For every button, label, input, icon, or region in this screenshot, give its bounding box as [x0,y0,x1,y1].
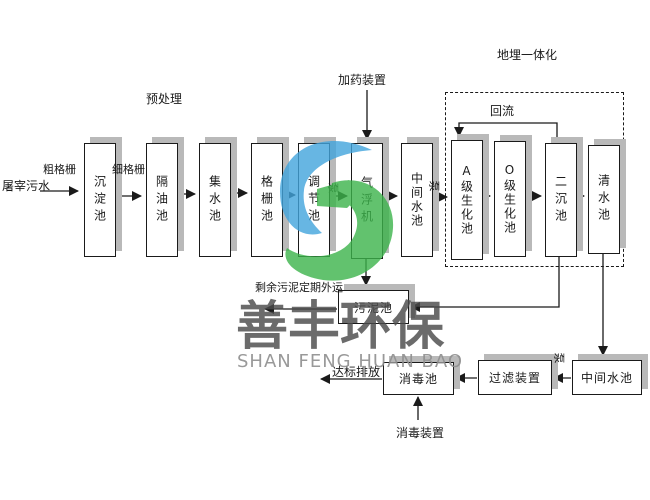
label-coarse-screen: 粗格栅 [43,161,76,177]
label-pretreatment: 预处理 [146,90,182,107]
box-secondary-sed: 二沉池 [545,143,577,257]
box-filter-device: 过滤装置 [478,360,552,395]
box-sludge: 污泥池 [338,290,409,324]
label-influent: 屠宰污水 [2,177,50,194]
box-disinfection: 消毒池 [383,362,454,395]
label-disinfection-device: 消毒装置 [396,424,444,441]
label-pump-1: 泵 [326,183,342,194]
label-reflux: 回流 [490,102,514,119]
label-pump-3: 泵 [552,353,568,364]
label-pump-2: 泵 [427,181,443,192]
label-discharge: 达标排放 [332,363,380,380]
label-fine-screen: 细格栅 [112,161,145,177]
box-regulating: 调节池 [298,143,330,257]
box-clear-water: 清水池 [588,145,620,254]
box-a-bio: A级生化池 [451,140,483,260]
process-flow-diagram: 沉淀池 隔油池 集水池 格栅池 调节池 气浮机 中间水池 A级生化池 O级生化池… [0,0,650,500]
label-buried-integration: 地埋一体化 [497,46,557,63]
box-screen-tank: 格栅池 [251,143,283,257]
box-intermediate-bottom: 中间水池 [572,360,642,395]
box-air-flotation: 气浮机 [351,143,383,259]
label-dosing-device: 加药装置 [338,71,386,88]
box-oil-separation: 隔油池 [146,143,178,257]
box-collection: 集水池 [199,143,231,257]
box-o-bio: O级生化池 [494,141,526,257]
label-sludge-out: 剩余污泥定期外运 [255,279,343,295]
arrow-secsed-to-sludge [411,256,559,307]
box-intermediate-top: 中间水池 [401,143,433,257]
